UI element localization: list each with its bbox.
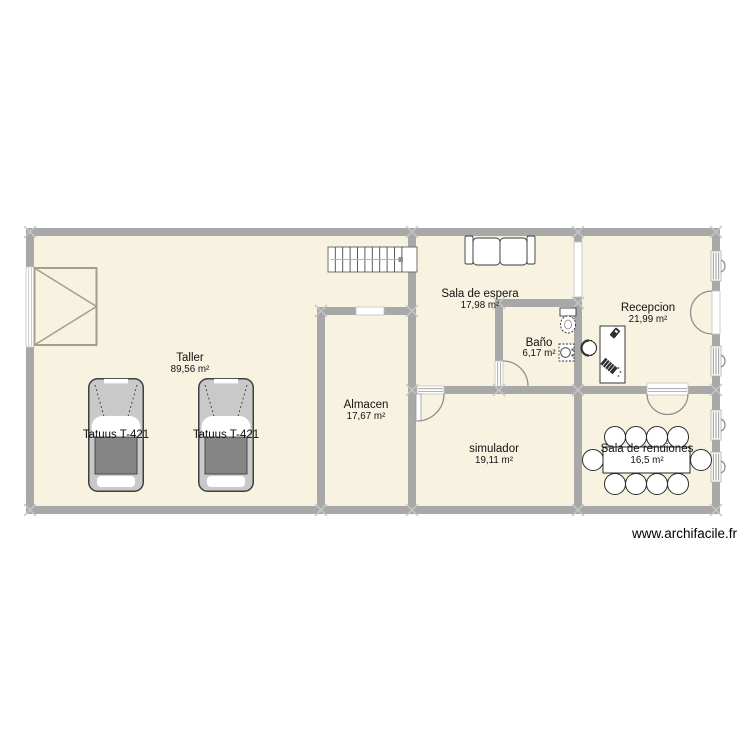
entrance-door-gap	[712, 291, 720, 334]
sink-icon	[559, 344, 574, 361]
chair-icon	[691, 450, 712, 471]
room-name: Sala de renuiones	[601, 443, 694, 455]
room-area: 89,56 m²	[171, 364, 210, 375]
room-name: simulador	[469, 443, 519, 455]
toilet-icon	[560, 308, 576, 333]
bathroom-door-gap	[495, 361, 503, 386]
reception-desk-icon	[600, 326, 625, 383]
page: Taller 89,56 m² Almacen 17,67 m² Sala de…	[0, 0, 750, 750]
office-chair-icon	[582, 341, 597, 356]
watermark-text: www.archifacile.fr	[631, 526, 738, 541]
room-label-almacen: Almacen 17,67 m²	[344, 399, 389, 422]
vehicle-label: Tatuus T-421	[193, 429, 259, 441]
room-name: Taller	[176, 352, 204, 364]
room-area: 21,99 m²	[629, 314, 668, 325]
vehicle-label: Tatuus T-421	[83, 429, 149, 441]
room-name: Sala de espera	[441, 288, 519, 300]
room-area: 19,11 m²	[475, 455, 514, 466]
window-icon	[711, 452, 725, 482]
room-label-recepcion: Recepcion 21,99 m²	[621, 302, 675, 325]
chair-icon	[605, 474, 626, 495]
room-area: 17,98 m²	[461, 300, 500, 311]
room-name: Almacen	[344, 399, 389, 411]
window-icon	[711, 251, 725, 281]
chair-icon	[668, 474, 689, 495]
sofa-icon	[465, 236, 535, 265]
room-label-bano: Baño 6,17 m²	[522, 337, 556, 359]
stairs-icon	[328, 247, 417, 272]
meeting-door-gap	[647, 383, 688, 395]
window-icon	[711, 346, 725, 376]
passage-opening	[574, 242, 582, 297]
window-icon	[711, 410, 725, 440]
room-label-simulador: simulador 19,11 m²	[469, 443, 519, 466]
room-area: 17,67 m²	[347, 411, 386, 422]
storage-opening	[356, 307, 384, 315]
garage-opening	[26, 267, 34, 347]
simulator-door-gap	[417, 386, 444, 394]
chair-icon	[647, 474, 668, 495]
room-area: 6,17 m²	[522, 348, 556, 359]
floor-plan-canvas: Taller 89,56 m² Almacen 17,67 m² Sala de…	[0, 0, 750, 750]
chair-icon	[626, 474, 647, 495]
room-area: 16,5 m²	[630, 455, 664, 466]
room-name: Recepcion	[621, 302, 675, 314]
